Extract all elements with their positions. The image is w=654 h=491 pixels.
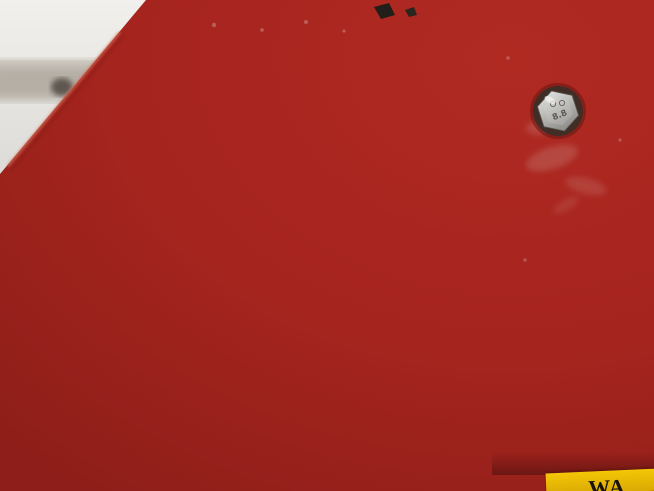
photo-scene: 8.8 Carico nominale Rated load Nenntragf… <box>0 0 654 491</box>
black-mark-on-label-top <box>368 3 424 23</box>
warning-sticker-text: WA <box>588 474 627 491</box>
hex-bolt: 8.8 <box>532 85 585 138</box>
background-red-plate: 8.8 <box>0 0 654 491</box>
red-machine-plate <box>0 0 654 491</box>
warning-sticker: WA <box>546 469 654 491</box>
